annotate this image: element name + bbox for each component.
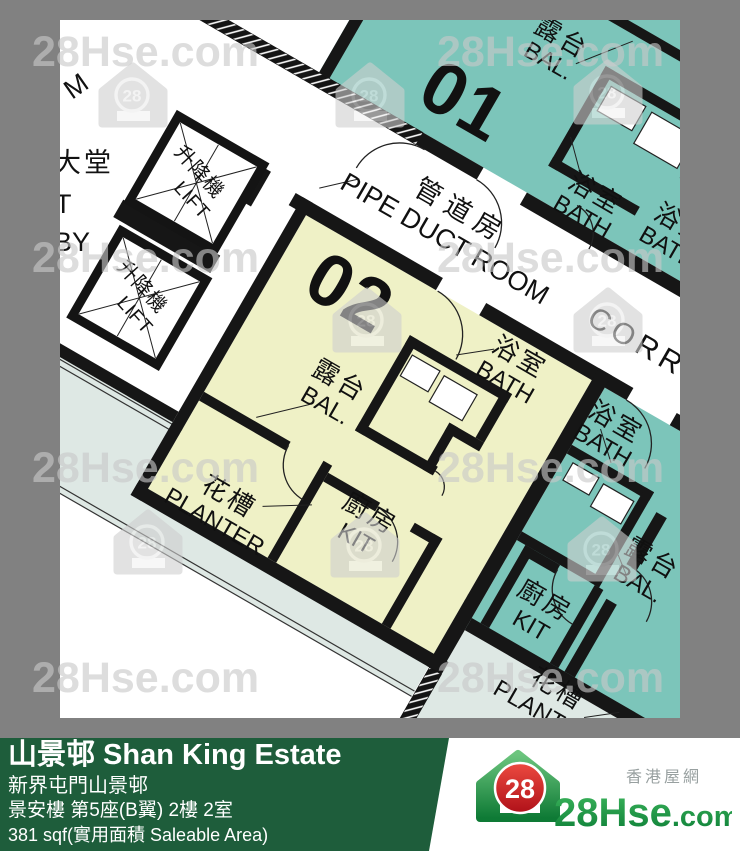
- lobby-label-zh: 大堂: [54, 148, 114, 178]
- brand-text: 28Hse.com: [554, 791, 732, 835]
- floorplan-image: 升降機 LIFT 28Hse.com 28: [0, 0, 740, 738]
- site-name-zh: 香港屋網: [626, 768, 702, 786]
- logo-house-icon: 28: [480, 754, 556, 818]
- 28hse-logo: 28 香港屋網 28Hse.com: [462, 746, 732, 846]
- info-footer: 山景邨 Shan King Estate 新界屯門山景邨 景安樓 第5座(B翼)…: [0, 738, 740, 851]
- saleable-area: 381 sqf(實用面積 Saleable Area): [8, 825, 342, 847]
- unit-info: 景安樓 第5座(B翼) 2樓 2室: [8, 800, 342, 823]
- estate-title: 山景邨 Shan King Estate: [8, 739, 342, 772]
- floorplan-page: 升降機 LIFT 28Hse.com 28: [0, 0, 740, 851]
- estate-address: 新界屯門山景邨: [8, 774, 342, 798]
- logo-badge-number: 28: [505, 774, 535, 804]
- property-info: 山景邨 Shan King Estate 新界屯門山景邨 景安樓 第5座(B翼)…: [8, 739, 342, 846]
